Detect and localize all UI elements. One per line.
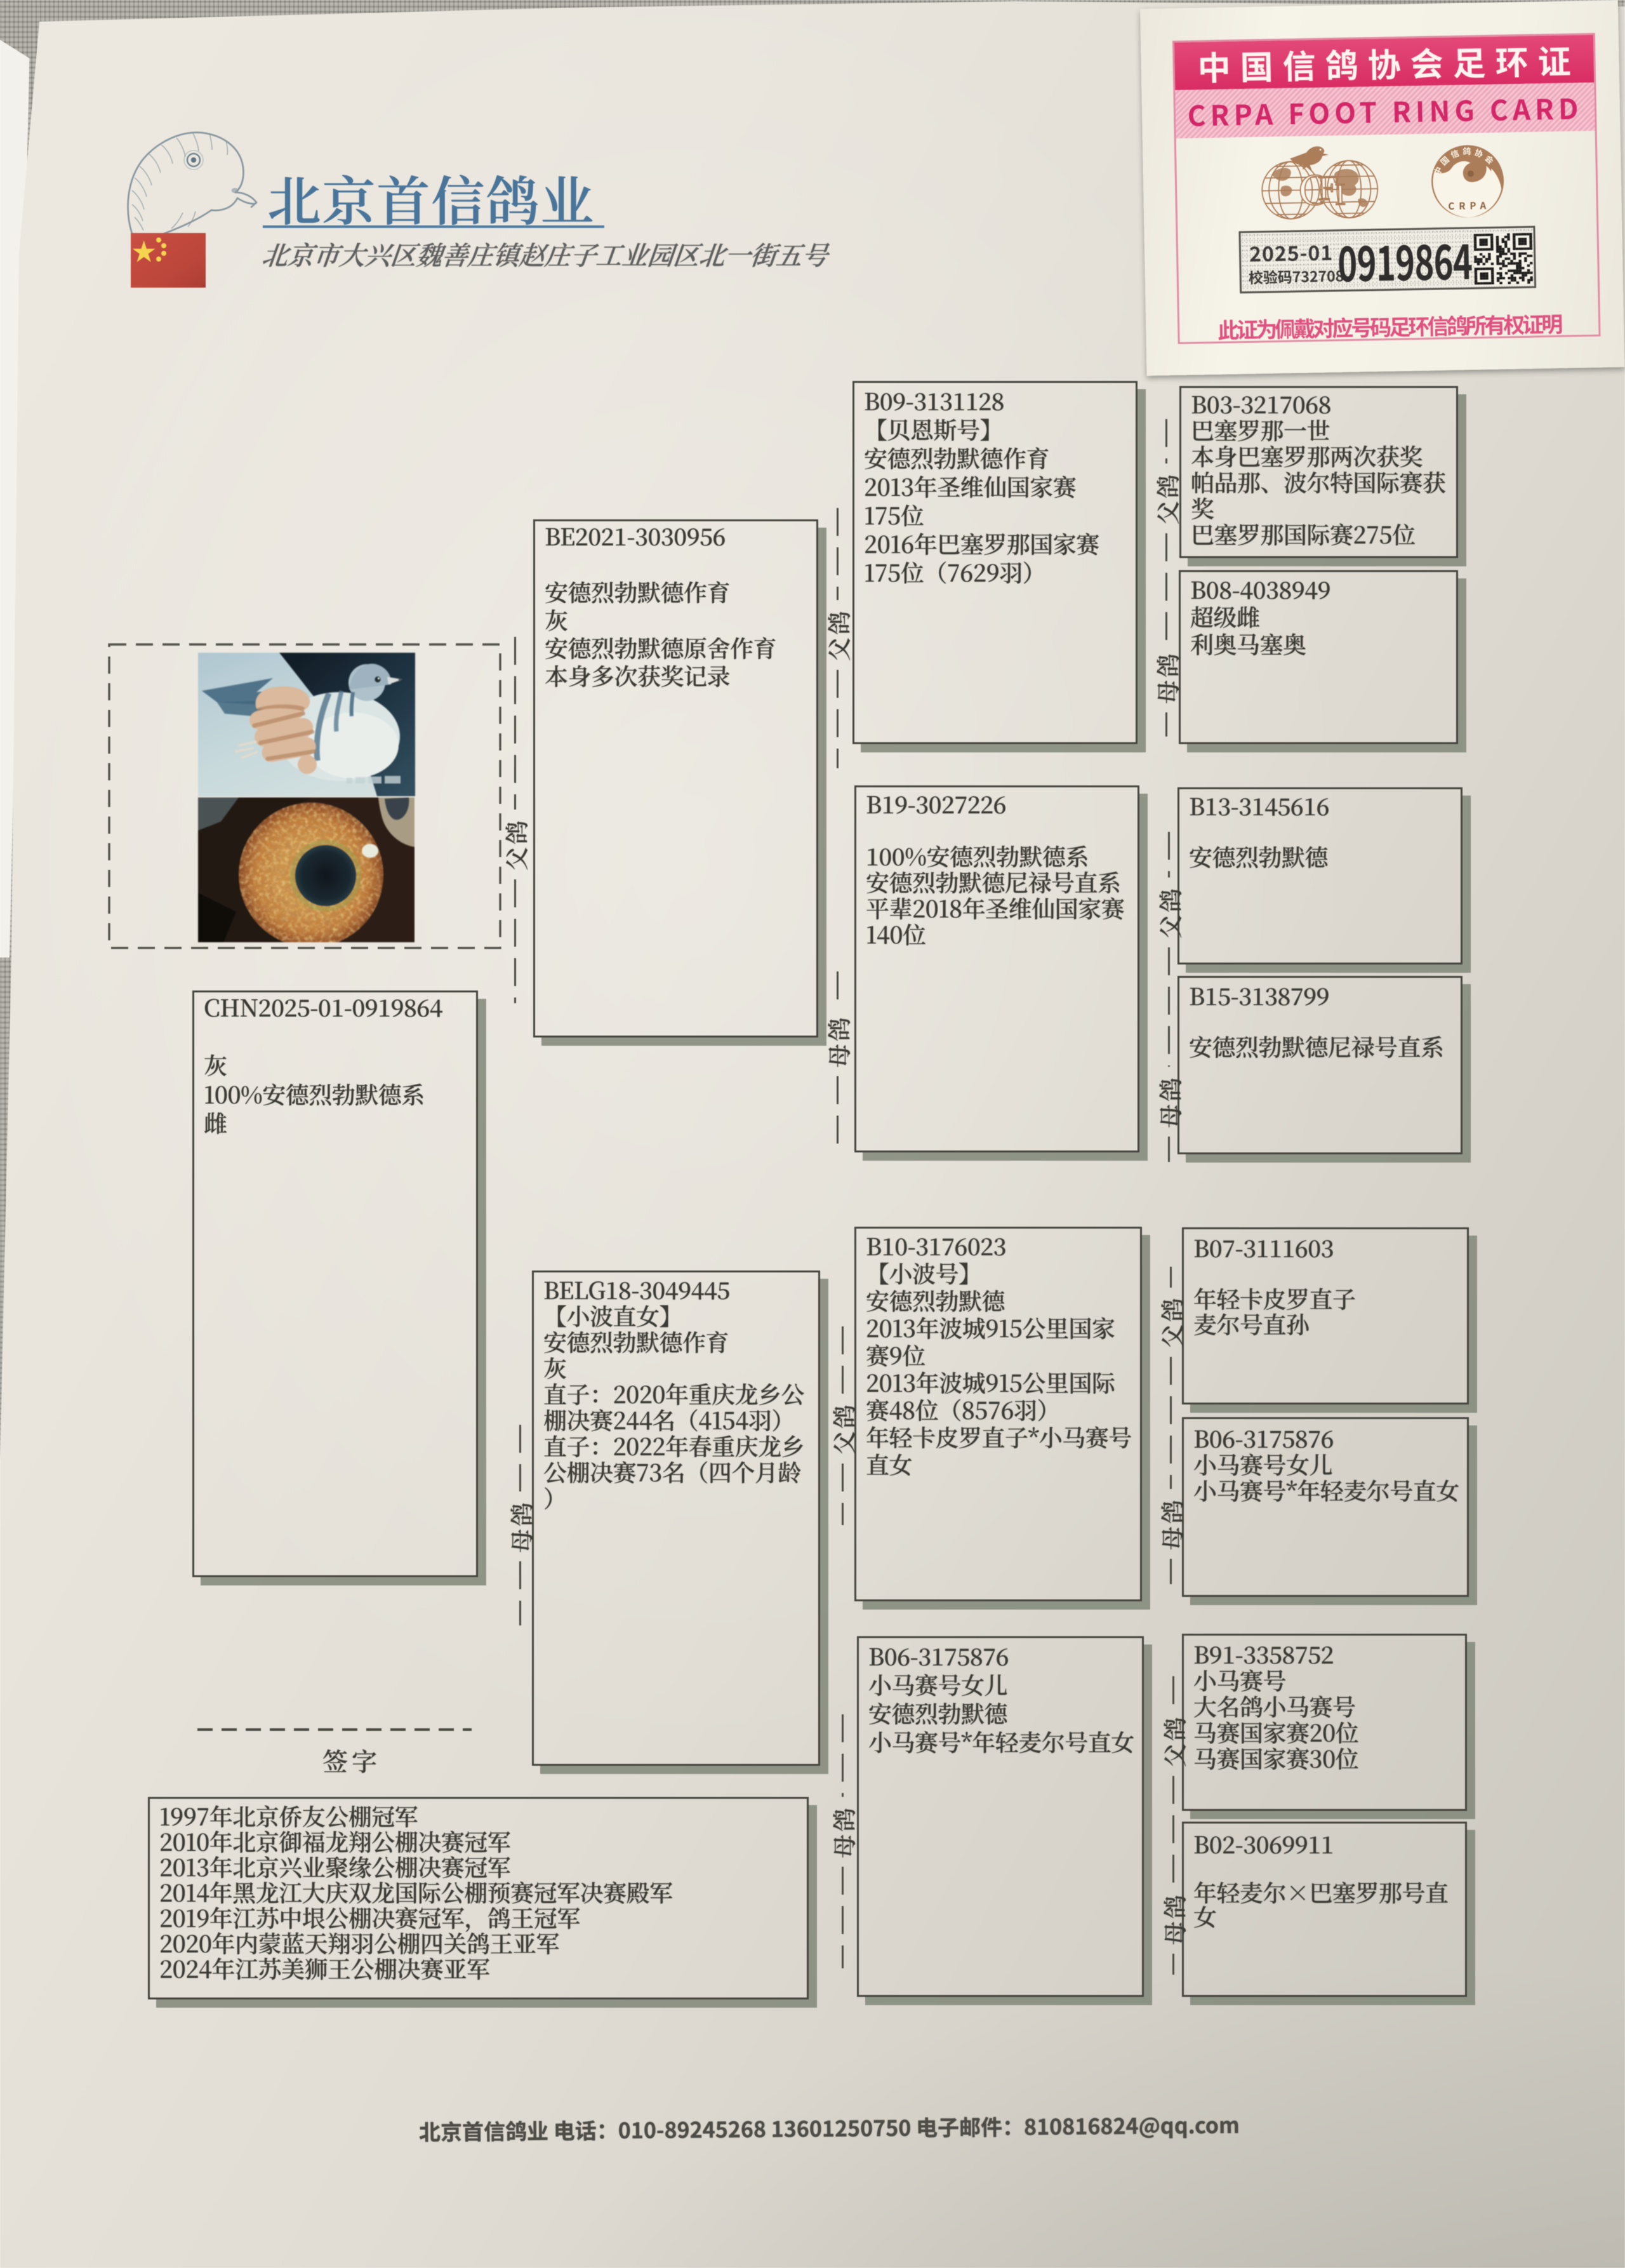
svg-text:CRPA: CRPA [1448,199,1490,213]
svg-text:I: I [1334,172,1346,213]
